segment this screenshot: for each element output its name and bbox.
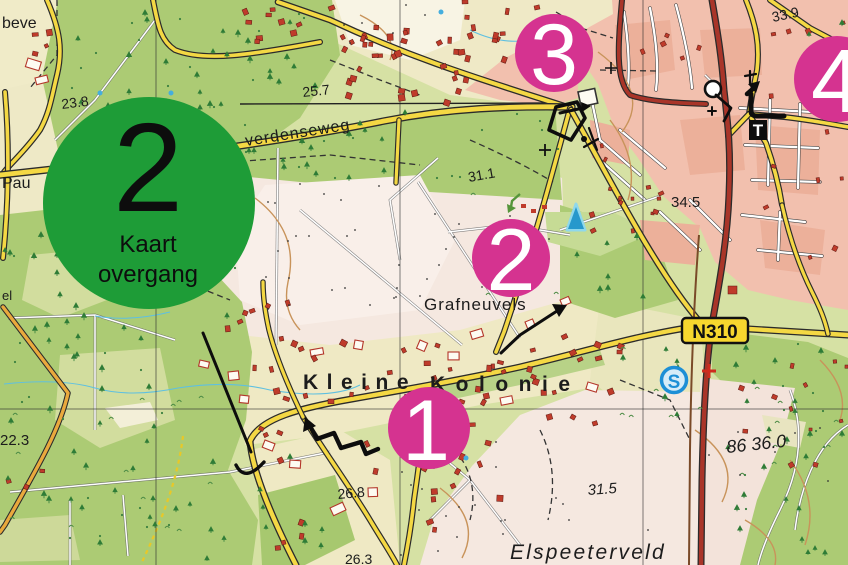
svg-text:Kleine: Kleine (303, 371, 417, 394)
svg-text:26.3: 26.3 (345, 551, 372, 565)
svg-text:beve: beve (2, 15, 37, 32)
svg-text:Kaart: Kaart (119, 231, 177, 258)
svg-text:25.7: 25.7 (302, 81, 331, 100)
svg-text:22.3: 22.3 (0, 432, 29, 449)
svg-text:overgang: overgang (98, 261, 198, 288)
svg-text:S: S (668, 372, 681, 393)
svg-text:Kolonie: Kolonie (430, 373, 581, 396)
svg-text:31.5: 31.5 (587, 480, 618, 499)
svg-text:23.8: 23.8 (60, 93, 89, 112)
svg-text:26.8: 26.8 (337, 484, 366, 502)
svg-text:4: 4 (811, 32, 848, 132)
svg-text:T: T (753, 121, 764, 140)
svg-text:2: 2 (487, 210, 536, 309)
svg-text:1: 1 (402, 383, 450, 479)
svg-text:34.5: 34.5 (671, 194, 700, 211)
svg-text:N310: N310 (692, 322, 737, 343)
svg-text:3: 3 (530, 7, 578, 103)
svg-text:2: 2 (113, 97, 183, 238)
svg-text:el: el (2, 288, 12, 303)
svg-text:Elspeeterveld: Elspeeterveld (510, 541, 666, 564)
svg-text:Pau: Pau (2, 175, 30, 192)
